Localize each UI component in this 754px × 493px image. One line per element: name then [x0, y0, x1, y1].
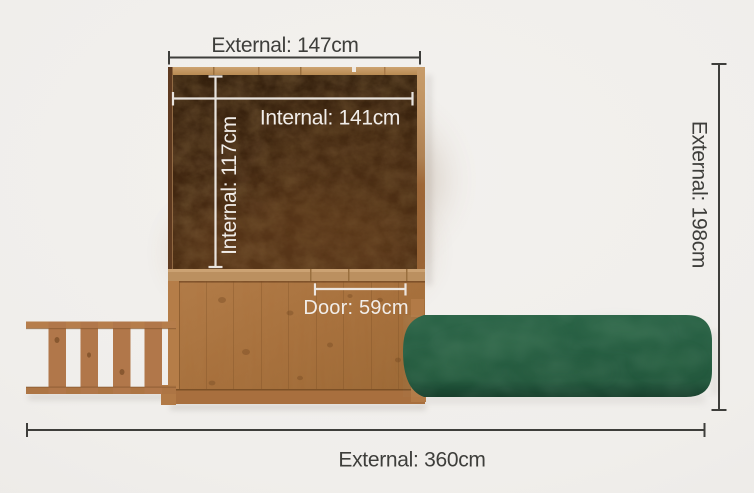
svg-text:External: 360cm: External: 360cm	[338, 449, 485, 472]
svg-text:Internal: 141cm: Internal: 141cm	[260, 107, 400, 130]
svg-text:Internal: 117cm: Internal: 117cm	[218, 116, 241, 255]
svg-text:External: 147cm: External: 147cm	[211, 34, 358, 57]
svg-text:Door: 59cm: Door: 59cm	[303, 297, 408, 319]
svg-text:External: 198cm: External: 198cm	[687, 121, 710, 268]
